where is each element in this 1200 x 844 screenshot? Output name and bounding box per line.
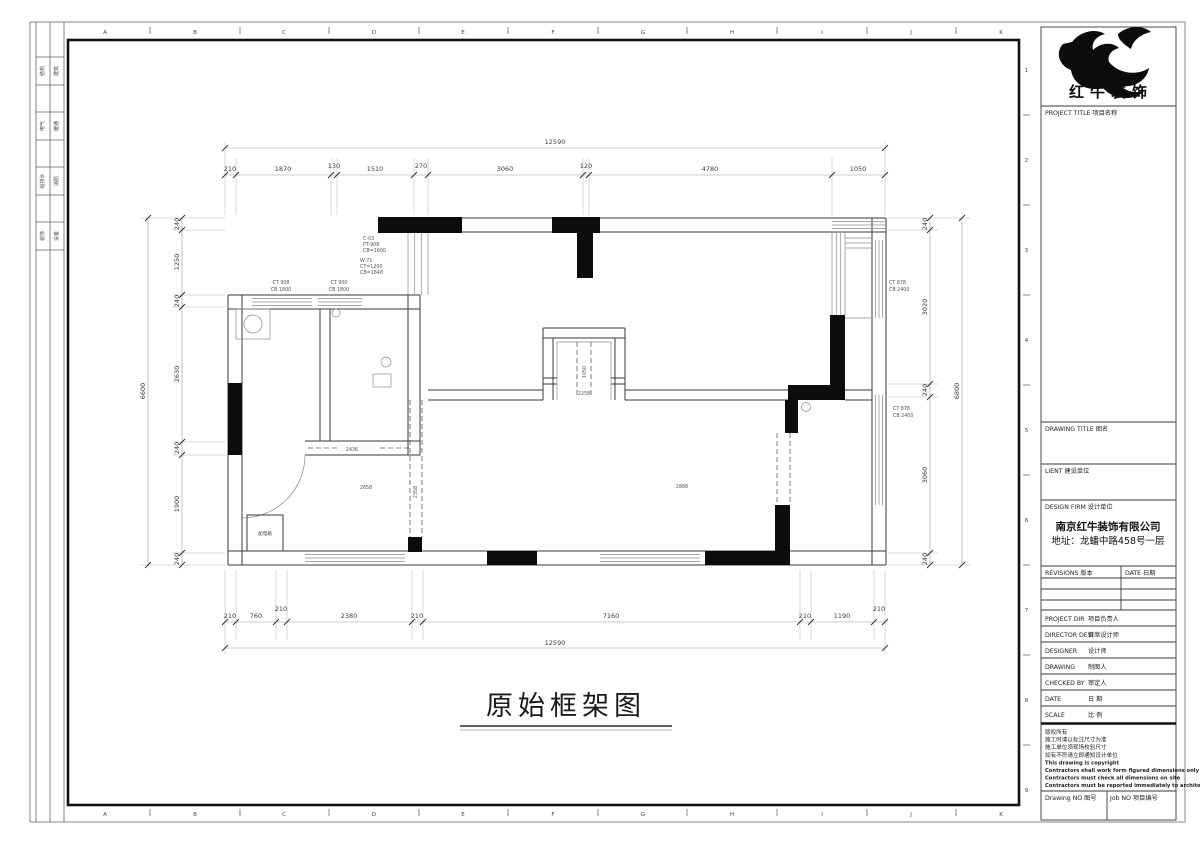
dim: 240 <box>173 295 181 307</box>
window-right-lower <box>876 395 883 505</box>
wall-note: PT-908 <box>363 242 379 248</box>
window-leftrooms-1 <box>252 299 312 306</box>
room-dim: 2658 <box>360 485 372 491</box>
field-job-no: Job NO 项目编号 <box>1109 794 1158 802</box>
title-block: 红牛装饰 PROJECT TITLE 项目名称 DRAWING TITLE 图名… <box>1041 27 1200 820</box>
dim: 1510 <box>367 165 384 173</box>
wall-note: C-03 <box>363 236 374 242</box>
field-design-firm: DESIGN FIRM 设计单位 <box>1045 503 1113 511</box>
room-dim: 2868 <box>676 484 688 490</box>
ruler-number: 3 <box>1025 248 1029 254</box>
wall-leftrooms-bottom <box>305 441 420 455</box>
copyright-line: Contractors must be reported immediately… <box>1045 783 1200 789</box>
ruler-number: 9 <box>1025 788 1029 794</box>
floor-plan: CT 908 CB 1800 CT 900 CB 1800 C-03 PT-90… <box>228 217 913 565</box>
signoff-strip: 结构 建筑 电气 暖通 给排水 消防 装饰 设备 <box>39 66 60 241</box>
dim: 1190 <box>834 612 851 620</box>
signoff-label: 消防 <box>53 176 60 186</box>
dim: 120 <box>580 162 592 170</box>
copyright-line: This drawing is copyright <box>1045 760 1120 766</box>
signoff-label: 建筑 <box>53 66 60 76</box>
dim-overall-right: 6800 <box>953 383 961 400</box>
row-cn: 日 期 <box>1088 695 1102 703</box>
signoff-label: 结构 <box>39 66 46 76</box>
dim: 130 <box>328 162 340 170</box>
ruler-letter: B <box>193 812 197 818</box>
ruler-letter: D <box>372 30 376 36</box>
ruler-number: 8 <box>1025 698 1029 704</box>
drawing-title-text: 原始框架图 <box>486 691 646 722</box>
brand-name: 红牛装饰 <box>1069 83 1153 101</box>
dim: 1050 <box>850 165 867 173</box>
ruler-letter: B <box>193 30 197 36</box>
window-label: CT 908 <box>273 280 290 286</box>
ruler-letter: K <box>999 812 1003 818</box>
signoff-label: 给排水 <box>39 173 46 188</box>
dim: 210 <box>275 605 287 613</box>
ruler-letter: G <box>641 812 645 818</box>
ruler-letter: E <box>461 812 465 818</box>
wall-note: W-71 <box>360 258 372 264</box>
field-project-title: PROJECT TITLE 项目名称 <box>1045 109 1117 117</box>
company-logo: 红牛装饰 <box>1059 27 1153 101</box>
ruler-letter: H <box>730 812 734 818</box>
entry-door <box>242 455 305 518</box>
dim-overall-bottom: 12590 <box>545 639 566 647</box>
field-date-col: DATE 日期 <box>1125 569 1155 577</box>
dim-overall-left: 6600 <box>139 383 147 400</box>
balcony-band <box>832 233 872 318</box>
window-leftrooms-2 <box>318 299 362 306</box>
ruler-number: 5 <box>1025 428 1029 434</box>
dim: 4780 <box>702 165 719 173</box>
shaft-dim: 1050 <box>582 366 588 378</box>
shaft-dim: 2258 <box>578 391 590 397</box>
ruler-letter: I <box>821 812 823 818</box>
wall-note: CB=1848 <box>360 270 383 276</box>
row-cn: 制图人 <box>1088 663 1107 671</box>
row-cn: 项目负责人 <box>1088 615 1119 623</box>
dim: 3060 <box>497 165 514 173</box>
dim: 1250 <box>173 254 181 271</box>
dim: 240 <box>921 384 929 396</box>
ruler-bottom: A B C D E F G H I J K <box>103 809 1003 818</box>
window-label: CB 1800 <box>271 287 291 293</box>
columns <box>228 217 845 565</box>
wall-note: CB 2400 <box>893 413 913 419</box>
window-bottom-1 <box>305 555 405 562</box>
row-en: CHECKED BY <box>1045 680 1085 687</box>
wall-note: CT=1200 <box>360 264 383 270</box>
copyright-line: Contractors must check all dimensions on… <box>1045 776 1181 782</box>
row-en: DIRECTOR DESI <box>1045 632 1094 639</box>
ruler-letter: A <box>103 30 107 36</box>
row-en: PROJECT DIR <box>1045 616 1085 623</box>
dim: 240 <box>921 218 929 230</box>
room-dim: 2358 <box>413 486 419 498</box>
copyright-line: 施工单位须现场校验尺寸 <box>1045 743 1107 751</box>
dim: 240 <box>173 442 181 454</box>
dim: 3020 <box>921 299 929 316</box>
copyright-line: 施工时请以标注尺寸为准 <box>1045 736 1107 744</box>
dim: 240 <box>173 553 181 565</box>
field-revisions: REVISIONS 版本 <box>1045 569 1093 577</box>
field-client: LIENT 建设单位 <box>1045 467 1089 475</box>
wall-note: CB=1600 <box>363 248 386 254</box>
ruler-letter: D <box>372 812 376 818</box>
dim: 3060 <box>921 467 929 484</box>
row-en: DATE <box>1045 696 1061 703</box>
ruler-letter: E <box>461 30 465 36</box>
window-right-upper <box>876 240 883 318</box>
dashed-right-opening <box>777 433 790 505</box>
ruler-letter: G <box>641 30 645 36</box>
dim: 270 <box>415 162 427 170</box>
dim: 210 <box>411 612 423 620</box>
dim: 2630 <box>173 366 181 383</box>
ruler-letter: C <box>282 812 286 818</box>
ruler-letter: H <box>730 30 734 36</box>
dimensions: 12590 210 1870 130 1510 270 3060 120 478… <box>139 138 970 655</box>
dim: 240 <box>921 553 929 565</box>
ruler-number: 7 <box>1025 608 1029 614</box>
field-drawing-title: DRAWING TITLE 图名 <box>1045 425 1108 433</box>
dim: 1870 <box>275 165 292 173</box>
ruler-number: 2 <box>1025 158 1029 164</box>
ruler-letter: J <box>909 30 912 36</box>
ruler-letter: F <box>551 30 554 36</box>
dim: 760 <box>250 612 262 620</box>
cad-sheet: 结构 建筑 电气 暖通 给排水 消防 装饰 设备 A B C D E F G H… <box>0 0 1200 844</box>
ruler-letter: K <box>999 30 1003 36</box>
row-cn: 首席设计师 <box>1088 631 1119 639</box>
dim: 1900 <box>173 496 181 513</box>
ruler-letter: F <box>551 812 554 818</box>
window-vertical-band <box>408 232 428 295</box>
row-cn: 比 例 <box>1088 711 1102 719</box>
electric-box-label: 配电箱 <box>258 530 272 537</box>
company-address: 地址：龙蟠中路458号一层 <box>1051 535 1164 547</box>
company-name: 南京红牛装饰有限公司 <box>1056 520 1161 533</box>
shaft-walls <box>543 328 625 400</box>
ruler-letter: J <box>909 812 912 818</box>
ruler-letter: I <box>821 30 823 36</box>
dim: 210 <box>873 605 885 613</box>
drawing-canvas: 结构 建筑 电气 暖通 给排水 消防 装饰 设备 A B C D E F G H… <box>0 0 1200 844</box>
dim: 210 <box>799 612 811 620</box>
row-en: DRAWING <box>1045 664 1075 671</box>
ruler-letter: C <box>282 30 286 36</box>
dim: 210 <box>224 612 236 620</box>
drawing-title: 原始框架图 <box>460 691 672 730</box>
window-bottom-2 <box>600 555 700 562</box>
copyright-line: 如有不符请立即通知设计单位 <box>1045 751 1118 759</box>
ruler-top: A B C D E F G H I J K <box>103 27 1003 36</box>
wall-note: CB 2400 <box>889 287 909 293</box>
bull-horn-icon <box>1118 27 1151 49</box>
dim: 2380 <box>341 612 358 620</box>
room-dim: 2436 <box>346 447 358 453</box>
signoff-label: 装饰 <box>39 231 46 241</box>
signoff-label: 电气 <box>39 121 46 131</box>
row-en: DESIGNER <box>1045 648 1078 655</box>
field-drawing-no: Drawing NO 图号 <box>1045 795 1097 802</box>
wall-leftrooms-right <box>408 295 420 455</box>
dim: 210 <box>224 165 236 173</box>
ruler-number: 1 <box>1025 68 1029 74</box>
ruler-right: 1 2 3 4 5 6 7 8 9 <box>1023 68 1030 794</box>
signoff-label: 设备 <box>53 231 60 241</box>
row-cn: 设计师 <box>1088 647 1107 655</box>
wall-partition <box>320 309 330 441</box>
row-en: SCALE <box>1045 712 1065 719</box>
fixtures <box>236 309 811 551</box>
window-top-right <box>832 222 886 229</box>
wall-note: CT 878 <box>889 280 906 286</box>
window-label: CB 1800 <box>329 287 349 293</box>
copyright-line: 版权所有 <box>1045 728 1068 736</box>
row-cn: 审定人 <box>1088 679 1107 687</box>
copyright-line: Contractors shall work form figured dime… <box>1045 768 1200 774</box>
dim: 7160 <box>603 612 620 620</box>
ruler-letter: A <box>103 812 107 818</box>
wall-note: CT 878 <box>893 406 910 412</box>
ruler-number: 4 <box>1025 338 1029 344</box>
signoff-label: 暖通 <box>53 121 60 131</box>
window-label: CT 900 <box>331 280 348 286</box>
dim-overall-top: 12590 <box>545 138 566 146</box>
ruler-number: 6 <box>1025 518 1029 524</box>
dim: 240 <box>173 218 181 230</box>
